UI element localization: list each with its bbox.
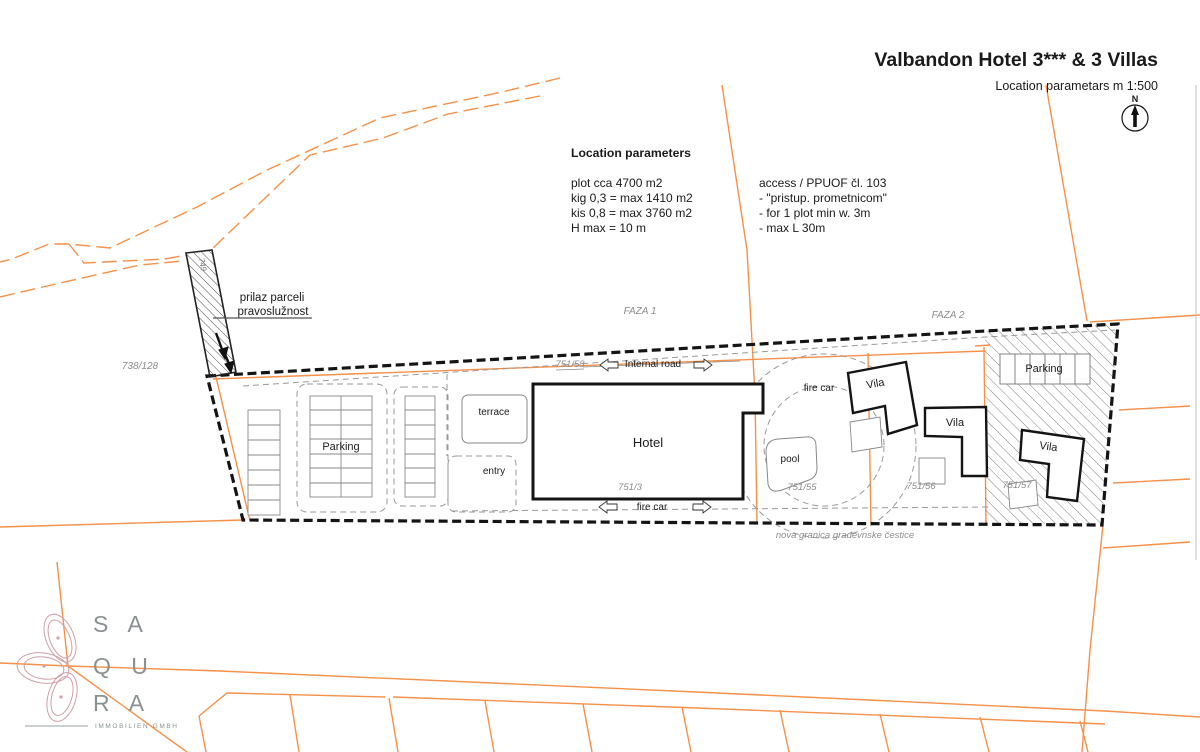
cadastre-line — [1105, 711, 1200, 717]
parameter-line: H max = 10 m — [571, 221, 646, 235]
terrace-label: terrace — [478, 407, 510, 418]
cadastre-line — [682, 707, 691, 752]
logo-row-2: Q U — [93, 653, 155, 679]
logo-tagline: IMMOBILIEN GMBH — [95, 723, 179, 730]
cadastre-line — [57, 562, 68, 666]
access-strip-hatched — [186, 250, 236, 377]
stall-column — [248, 410, 280, 515]
cadastre-line — [0, 261, 183, 297]
parking-east-label: Parking — [1025, 363, 1062, 375]
site-plan-sheet: N S A Q U R A IMMOBILIEN GMBH Valbandon … — [0, 0, 1200, 752]
parcel-751-58-label: 751/58 — [555, 359, 585, 370]
parking-west-label: Parking — [322, 441, 359, 453]
hotel-label: Hotel — [633, 435, 663, 450]
parcel-751-3-label: 751/3 — [618, 482, 642, 493]
prilaz-label-line1: prilaz parceli — [240, 292, 305, 304]
arrow-left-icon — [599, 501, 617, 513]
fire-car-bottom-label: fire car — [637, 502, 668, 513]
parcel-738-128-label: 738/128 — [122, 361, 159, 372]
villa-2-label: Vila — [946, 417, 965, 429]
access-line: - "pristup. prometnicom" — [759, 191, 887, 205]
parcel-751-56-label: 751/56 — [906, 481, 936, 492]
cadastre-line — [69, 244, 186, 263]
cadastre-line — [1103, 542, 1190, 548]
site-plan-drawing: N S A Q U R A IMMOBILIEN GMBH Valbandon … — [0, 0, 1200, 752]
cadastre-line — [1046, 85, 1087, 321]
cadastre-line — [0, 78, 560, 262]
cadastre-line — [485, 701, 494, 752]
logo-flower-icon — [15, 610, 82, 725]
small-structure — [850, 417, 882, 452]
access-line: access / PPUOF čl. 103 — [759, 176, 887, 190]
cadastre-line — [0, 520, 243, 527]
cadastre-line — [980, 717, 989, 752]
cadastre-line — [583, 704, 592, 752]
cadastre-line — [393, 697, 1105, 724]
parcel-751-55-label: 751/55 — [787, 482, 817, 493]
parameter-line: kis 0,8 = max 3760 m2 — [571, 206, 692, 220]
cadastre-line — [1090, 315, 1200, 322]
faza2-label: FAZA 2 — [932, 310, 965, 321]
access-line: - for 1 plot min w. 3m — [759, 206, 870, 220]
cadastre-line — [0, 663, 1105, 711]
fire-car-top-label: fire car — [804, 383, 835, 394]
fire-route-line — [452, 507, 990, 511]
internal-road-label: Internal road — [625, 359, 681, 370]
access-line: - max L 30m — [759, 221, 825, 235]
north-compass-icon: N — [1122, 94, 1148, 131]
access-rules-block: access / PPUOF čl. 103 - "pristup. prome… — [759, 176, 887, 235]
cadastre-line — [290, 695, 299, 752]
entry-lane-outline — [448, 456, 516, 512]
arrow-right-icon — [693, 501, 711, 513]
entry-label: entry — [483, 466, 505, 477]
cadastre-line — [216, 377, 250, 521]
prilaz-label-line2: pravoslužnost — [238, 306, 310, 318]
parameters-heading: Location parameters — [571, 146, 691, 160]
logo-row-3: R A — [93, 690, 151, 716]
page-title: Valbandon Hotel 3*** & 3 Villas — [874, 49, 1158, 71]
pool-label: pool — [781, 454, 800, 465]
cadastre-line — [880, 714, 889, 752]
faza1-label: FAZA 1 — [624, 306, 657, 317]
cadastre-line — [1119, 406, 1190, 410]
arrow-left-icon — [600, 359, 618, 371]
location-parameters-block: Location parameters plot cca 4700 m2 kig… — [571, 146, 693, 235]
boundary-note-label: nova granica građevnske čestice — [776, 530, 914, 541]
stall-column — [405, 396, 435, 497]
parameter-line: plot cca 4700 m2 — [571, 176, 663, 190]
cadastre-line — [199, 716, 206, 752]
cadastre-line — [1113, 479, 1190, 483]
page-subtitle: Location parametars m 1:500 — [995, 79, 1158, 93]
cadastre-line — [389, 698, 398, 752]
parameter-line: kig 0,3 = max 1410 m2 — [571, 191, 693, 205]
cadastre-line — [1082, 525, 1103, 752]
terrace-outline — [462, 395, 527, 443]
logo-row-1: S A — [93, 611, 150, 637]
parcel-751-57-label: 751/57 — [1002, 480, 1032, 491]
parking-west-stalls — [248, 396, 435, 515]
cadastre-line — [780, 710, 789, 752]
compass-n-label: N — [1132, 94, 1139, 104]
